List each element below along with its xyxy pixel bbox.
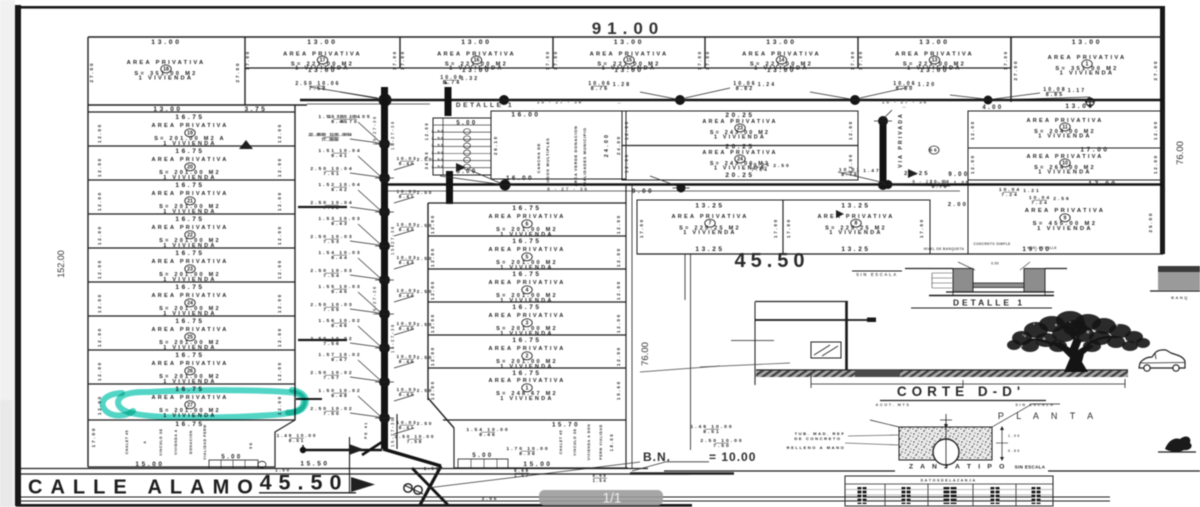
svg-text:12.00: 12.00 xyxy=(430,346,435,366)
svg-text:17.00: 17.00 xyxy=(919,218,924,238)
svg-text:2.50: 2.50 xyxy=(432,137,445,141)
svg-text:13.00: 13.00 xyxy=(308,67,337,74)
svg-text:AREA PRIVATIVA: AREA PRIVATIVA xyxy=(151,225,228,231)
svg-text:1 VIVIENDA: 1 VIVIENDA xyxy=(163,311,216,317)
svg-text:NIVEL DE BANQUETA: NIVEL DE BANQUETA xyxy=(924,247,965,251)
svg-text:16.75: 16.75 xyxy=(175,216,204,223)
svg-text:12.00: 12.00 xyxy=(97,361,102,381)
svg-text:8.41: 8.41 xyxy=(331,153,349,159)
svg-text:17.00: 17.00 xyxy=(858,50,863,70)
svg-text:AREA PRIVATIVA: AREA PRIVATIVA xyxy=(151,395,228,401)
svg-text:D A T O S D E L A Z A N: D A T O S D E L A Z A N J A xyxy=(921,479,976,483)
svg-text:8.36: 8.36 xyxy=(519,451,537,457)
svg-text:DONACION: DONACION xyxy=(189,430,193,454)
svg-text:AREA PRIVATIVA: AREA PRIVATIVA xyxy=(488,313,565,319)
svg-text:8.40: 8.40 xyxy=(399,161,416,166)
svg-text:8.85: 8.85 xyxy=(1046,92,1064,98)
svg-text:1 VIVIENDA: 1 VIVIENDA xyxy=(163,243,216,249)
svg-text:16.75: 16.75 xyxy=(512,370,541,377)
svg-text:9.00: 9.00 xyxy=(632,188,654,195)
svg-text:17.00: 17.00 xyxy=(639,218,644,238)
svg-text:16.00: 16.00 xyxy=(511,112,540,119)
svg-text:↔: ↔ xyxy=(902,104,908,109)
svg-text:SIN ESCALA: SIN ESCALA xyxy=(856,272,898,277)
svg-text:12.00: 12.00 xyxy=(616,247,621,267)
svg-text:27.00: 27.00 xyxy=(235,61,240,82)
svg-text:24.00: 24.00 xyxy=(604,133,610,158)
svg-text:8.82: 8.82 xyxy=(736,86,754,92)
svg-text:AREA PRIVATIVA: AREA PRIVATIVA xyxy=(151,259,228,265)
svg-text:15.00: 15.00 xyxy=(523,461,552,468)
svg-text:8.46: 8.46 xyxy=(479,432,497,438)
svg-text:0.60: 0.60 xyxy=(1008,449,1021,453)
svg-text:15.60: 15.60 xyxy=(616,380,621,400)
svg-text:AREA PRIVATIVA: AREA PRIVATIVA xyxy=(151,157,228,163)
svg-text:7.58: 7.58 xyxy=(407,439,424,444)
svg-text:AREA PRIVATIVA: AREA PRIVATIVA xyxy=(488,247,565,253)
svg-text:13.00: 13.00 xyxy=(920,67,949,74)
svg-text:15.50: 15.50 xyxy=(300,461,329,468)
svg-text:45.50: 45.50 xyxy=(734,250,809,272)
svg-text:8.76: 8.76 xyxy=(591,86,609,92)
svg-text:9 - 27 - 36: 9 - 27 - 36 xyxy=(547,187,589,192)
svg-text:1 VIVIENDA: 1 VIVIENDA xyxy=(1037,226,1093,232)
svg-text:12.00: 12.00 xyxy=(624,153,629,173)
svg-text:1.28: 1.28 xyxy=(613,82,631,88)
svg-text:15-27-36: 15-27-36 xyxy=(390,225,395,255)
svg-text:17.00: 17.00 xyxy=(1080,147,1109,154)
svg-text:2.00: 2.00 xyxy=(948,202,968,208)
svg-text:VINCULO SE: VINCULO SE xyxy=(159,428,163,455)
svg-text:CONCRETO SIMPLE: CONCRETO SIMPLE xyxy=(973,242,1011,246)
svg-text:1 VIVIENDA: 1 VIVIENDA xyxy=(163,379,216,385)
svg-text:12.00: 12.00 xyxy=(424,122,429,141)
svg-text:17.00: 17.00 xyxy=(697,50,702,70)
svg-text:12.00: 12.00 xyxy=(1153,154,1158,174)
svg-text:8.45: 8.45 xyxy=(399,326,416,331)
svg-text:12.00: 12.00 xyxy=(430,247,435,267)
svg-text:13.00: 13.00 xyxy=(919,39,949,46)
svg-text:AREA PRIVATIVA: AREA PRIVATIVA xyxy=(488,346,565,352)
svg-text:12.00: 12.00 xyxy=(277,123,282,143)
svg-text:12.00: 12.00 xyxy=(430,313,435,333)
svg-text:12.00: 12.00 xyxy=(277,259,282,279)
svg-text:13.00: 13.00 xyxy=(462,67,491,74)
svg-text:12.00: 12.00 xyxy=(277,293,282,313)
svg-text:8.46: 8.46 xyxy=(399,359,416,364)
svg-text:8.46: 8.46 xyxy=(331,323,349,329)
svg-text:17.00: 17.00 xyxy=(850,50,855,70)
svg-text:17.00: 17.00 xyxy=(786,218,791,238)
svg-text:27.00: 27.00 xyxy=(1013,59,1018,80)
svg-text:17.00: 17.00 xyxy=(400,50,405,70)
svg-text:2.50: 2.50 xyxy=(417,190,434,195)
svg-text:16.75: 16.75 xyxy=(175,284,204,291)
svg-text:CHALET 45: CHALET 45 xyxy=(125,430,129,454)
svg-text:8.43: 8.43 xyxy=(331,221,349,227)
svg-text:1 VIVIENDA: 1 VIVIENDA xyxy=(1038,133,1091,139)
svg-text:1.00: 1.00 xyxy=(1008,434,1021,438)
svg-text:12.00: 12.00 xyxy=(430,214,435,234)
svg-text:P L A N T A: P L A N T A xyxy=(998,411,1098,421)
svg-text:13.00: 13.00 xyxy=(767,67,796,74)
svg-text:12.00: 12.00 xyxy=(277,157,282,177)
svg-text:8.42: 8.42 xyxy=(331,187,349,193)
svg-text:17.00: 17.00 xyxy=(1003,50,1008,70)
svg-text:12.00: 12.00 xyxy=(277,361,282,381)
svg-text:12.00: 12.00 xyxy=(848,120,853,140)
svg-text:8.51: 8.51 xyxy=(703,429,721,435)
svg-text:16.75: 16.75 xyxy=(175,148,204,155)
svg-text:7.54: 7.54 xyxy=(751,167,769,173)
svg-text:15.70: 15.70 xyxy=(552,422,580,429)
svg-text:VINCULO SE: VINCULO SE xyxy=(573,428,577,455)
svg-text:RELLENO A MANO: RELLENO A MANO xyxy=(787,445,846,450)
svg-text:7.50: 7.50 xyxy=(713,443,731,449)
svg-text:8.44: 8.44 xyxy=(399,293,416,298)
svg-text:1 VIVIENDA: 1 VIVIENDA xyxy=(1038,169,1091,175)
svg-text:12.00: 12.00 xyxy=(97,157,102,177)
svg-text:5.00: 5.00 xyxy=(456,121,477,127)
svg-text:7.24: 7.24 xyxy=(1031,200,1049,206)
svg-text:16.75: 16.75 xyxy=(175,421,204,428)
svg-text:17.00: 17.00 xyxy=(545,50,550,70)
svg-text:1 VIVIENDA: 1 VIVIENDA xyxy=(500,396,553,402)
svg-text:15-27-36: 15-27-36 xyxy=(390,120,395,150)
svg-text:15-27-36: 15-27-36 xyxy=(390,417,395,447)
svg-text:2.50: 2.50 xyxy=(432,151,445,155)
svg-text:8.41: 8.41 xyxy=(399,425,416,430)
svg-text:CHALET 45: CHALET 45 xyxy=(559,430,563,454)
svg-text:8.41: 8.41 xyxy=(399,194,416,199)
svg-text:13.00: 13.00 xyxy=(614,39,644,46)
svg-text:1 VIVIENDA: 1 VIVIENDA xyxy=(829,230,882,236)
svg-text:76.00: 76.00 xyxy=(1175,141,1186,165)
svg-text:5.00: 5.00 xyxy=(472,453,493,459)
svg-text:12.00: 12.00 xyxy=(97,191,102,211)
svg-text:24.00: 24.00 xyxy=(616,135,621,155)
svg-text:2.50: 2.50 xyxy=(432,165,445,169)
svg-text:↔: ↔ xyxy=(617,100,623,105)
svg-text:12.00: 12.00 xyxy=(616,214,621,234)
svg-text:VIVIENDA A DON: VIVIENDA A DON xyxy=(587,424,591,461)
svg-text:13.00: 13.00 xyxy=(1072,39,1102,46)
svg-text:A: A xyxy=(143,440,147,443)
svg-text:15 - 27 - 36: 15 - 27 - 36 xyxy=(537,100,583,105)
svg-text:CORTE D-D': CORTE D-D' xyxy=(897,384,1025,399)
svg-text:12.00: 12.00 xyxy=(1153,120,1158,140)
svg-text:PERM VIALIDAD: PERM VIALIDAD xyxy=(599,424,603,459)
svg-text:16.75: 16.75 xyxy=(512,238,541,245)
svg-text:15-27-36: 15-27-36 xyxy=(390,323,395,353)
svg-text:26.10: 26.10 xyxy=(493,135,498,155)
svg-text:12.00: 12.00 xyxy=(277,327,282,347)
svg-text:AREA PRIVATIVA: AREA PRIVATIVA xyxy=(151,361,228,367)
svg-text:13.00: 13.00 xyxy=(151,39,181,46)
svg-text:1.20: 1.20 xyxy=(918,82,936,88)
svg-text:8.43: 8.43 xyxy=(399,260,416,265)
svg-text:AREA PRIVATIVA: AREA PRIVATIVA xyxy=(151,191,228,197)
svg-text:12.00: 12.00 xyxy=(97,259,102,279)
svg-text:5E: 5E xyxy=(249,441,253,449)
svg-text:20.25: 20.25 xyxy=(725,112,754,119)
svg-text:VIALIDAD PERM: VIALIDAD PERM xyxy=(203,424,207,459)
svg-text:8.42: 8.42 xyxy=(399,227,416,232)
svg-text:SIN ESCALA: SIN ESCALA xyxy=(1015,465,1046,470)
svg-text:17.00: 17.00 xyxy=(91,426,96,447)
svg-text:7.24: 7.24 xyxy=(1001,192,1019,198)
svg-text:13.25: 13.25 xyxy=(695,203,724,210)
svg-text:17.00: 17.00 xyxy=(553,50,558,70)
svg-text:8.44: 8.44 xyxy=(331,255,349,261)
svg-text:12.00: 12.00 xyxy=(97,123,102,143)
svg-text:2.56: 2.56 xyxy=(1053,196,1071,202)
svg-text:12.00: 12.00 xyxy=(430,280,435,300)
svg-text:DE CONCRETO: DE CONCRETO xyxy=(794,436,841,441)
svg-text:1.47: 1.47 xyxy=(863,168,881,174)
svg-text:8.45: 8.45 xyxy=(331,289,349,295)
svg-text:16.75: 16.75 xyxy=(512,205,541,212)
svg-text:DETALLE 1: DETALLE 1 xyxy=(456,102,514,109)
svg-text:BANQ: BANQ xyxy=(1171,295,1189,300)
svg-text:1.24: 1.24 xyxy=(758,82,776,88)
svg-text:SIN ESCALA: SIN ESCALA xyxy=(1015,402,1054,407)
svg-text:27.00: 27.00 xyxy=(89,61,94,82)
svg-text:1 VIVIENDA: 1 VIVIENDA xyxy=(163,345,216,351)
svg-text:AREA PRIVATIVA: AREA PRIVATIVA xyxy=(151,123,228,129)
svg-text:17.00: 17.00 xyxy=(705,50,710,70)
svg-text:8.48: 8.48 xyxy=(331,393,349,399)
svg-text:4.00: 4.00 xyxy=(982,105,1003,111)
svg-text:1 VIVIENDA: 1 VIVIENDA xyxy=(714,134,766,140)
svg-text:1/1: 1/1 xyxy=(603,491,622,506)
svg-text:7.54: 7.54 xyxy=(323,273,341,279)
svg-text:AREA PRIVATIVA: AREA PRIVATIVA xyxy=(488,280,565,286)
svg-text:0.50: 0.50 xyxy=(991,262,999,266)
svg-text:17.00: 17.00 xyxy=(245,50,250,70)
svg-text:AREA PRIVATIVA: AREA PRIVATIVA xyxy=(151,327,228,333)
svg-text:2.50: 2.50 xyxy=(432,158,445,162)
svg-text:1 VIVIENDA: 1 VIVIENDA xyxy=(163,175,216,181)
svg-text:15.00: 15.00 xyxy=(135,461,164,468)
svg-text:2.50: 2.50 xyxy=(773,163,791,169)
svg-text:AREA PRIVATIVA: AREA PRIVATIVA xyxy=(151,293,228,299)
svg-text:12.00: 12.00 xyxy=(616,346,621,366)
svg-text:7.50: 7.50 xyxy=(323,137,341,143)
svg-text:16.75: 16.75 xyxy=(175,114,204,121)
svg-text:17.00: 17.00 xyxy=(392,50,397,70)
svg-text:13.00: 13.00 xyxy=(461,39,491,46)
svg-text:DETALLE 1: DETALLE 1 xyxy=(953,298,1025,308)
svg-text:6.76: 6.76 xyxy=(932,184,949,189)
svg-text:1.54: 1.54 xyxy=(593,478,608,483)
svg-text:USOS MULTIPLES: USOS MULTIPLES xyxy=(545,137,550,182)
svg-text:VIALIDADES MUNICIPIO: VIALIDADES MUNICIPIO xyxy=(582,127,587,186)
svg-text:2.50: 2.50 xyxy=(417,157,434,162)
svg-text:16.75: 16.75 xyxy=(175,250,204,257)
svg-text:1 VIVIENDA: 1 VIVIENDA xyxy=(163,141,216,147)
svg-text:13.25: 13.25 xyxy=(841,246,870,253)
svg-text:16.75: 16.75 xyxy=(512,304,541,311)
svg-text:16.75: 16.75 xyxy=(512,337,541,344)
svg-text:16.75: 16.75 xyxy=(175,182,204,189)
svg-text:16.75: 16.75 xyxy=(175,318,204,325)
svg-text:9.00: 9.00 xyxy=(948,172,969,178)
svg-text:CANCHA DE: CANCHA DE xyxy=(536,143,541,173)
svg-text:7.55: 7.55 xyxy=(323,307,341,313)
svg-text:15-27-36: 15-27-36 xyxy=(372,285,377,315)
svg-text:AREA PRIVATIVA: AREA PRIVATIVA xyxy=(1025,208,1106,214)
svg-text:12.00: 12.00 xyxy=(97,225,102,245)
svg-text:25.00: 25.00 xyxy=(1148,211,1153,232)
svg-text:16.75: 16.75 xyxy=(512,271,541,278)
svg-text:1 VIVIENDA: 1 VIVIENDA xyxy=(683,230,736,236)
svg-text:16.75: 16.75 xyxy=(175,352,204,359)
svg-text:8.80: 8.80 xyxy=(896,86,914,92)
svg-text:1 VIVIENDA: 1 VIVIENDA xyxy=(163,209,216,215)
svg-text:1.17: 1.17 xyxy=(1068,88,1086,94)
svg-text:2.50: 2.50 xyxy=(432,144,445,148)
svg-text:8.51: 8.51 xyxy=(289,438,306,443)
svg-text:12.00: 12.00 xyxy=(277,191,282,211)
svg-text:AREA PRIVATIVA: AREA PRIVATIVA xyxy=(488,214,565,220)
svg-text:152.00: 152.00 xyxy=(56,250,66,278)
svg-text:13.25: 13.25 xyxy=(695,246,724,253)
svg-text:ACOT. MTS: ACOT. MTS xyxy=(875,402,910,407)
svg-text:12.00: 12.00 xyxy=(97,293,102,313)
svg-text:20.25: 20.25 xyxy=(725,172,754,179)
svg-text:2.50: 2.50 xyxy=(432,130,445,134)
svg-text:7.51: 7.51 xyxy=(323,171,341,177)
svg-text:VIA PRIVADA: VIA PRIVADA xyxy=(898,112,904,168)
svg-text:16.00: 16.00 xyxy=(506,175,534,182)
svg-text:7.53: 7.53 xyxy=(323,239,341,245)
svg-text:66: 66 xyxy=(930,148,939,153)
svg-text:12.00: 12.00 xyxy=(97,327,102,347)
svg-text:27.00: 27.00 xyxy=(1153,59,1158,80)
svg-text:1 VIVIENDA: 1 VIVIENDA xyxy=(163,277,216,283)
svg-text:CALLE ALAMO: CALLE ALAMO xyxy=(28,477,261,499)
svg-text:= 10.00: = 10.00 xyxy=(709,450,756,464)
svg-text:12.00: 12.00 xyxy=(430,380,435,400)
svg-text:15-27-36: 15-27-36 xyxy=(372,115,377,145)
svg-text:91.00: 91.00 xyxy=(592,19,665,38)
svg-text:7.57: 7.57 xyxy=(323,375,341,381)
svg-text:12.00: 12.00 xyxy=(616,280,621,300)
svg-text:8.40: 8.40 xyxy=(399,392,416,397)
svg-text:12.00: 12.00 xyxy=(624,120,629,140)
svg-text:12.00: 12.00 xyxy=(616,313,621,333)
svg-text:12.00: 12.00 xyxy=(277,225,282,245)
svg-text:▲: ▲ xyxy=(443,80,450,86)
svg-text:Z A N J A T I P O: Z A N J A T I P O xyxy=(909,464,1007,471)
svg-text:1.32: 1.32 xyxy=(461,76,479,82)
svg-text:VIVIENDA A: VIVIENDA A xyxy=(174,429,178,455)
svg-text:AREA PRIVATIVA: AREA PRIVATIVA xyxy=(488,378,565,384)
svg-text:PE 41: PE 41 xyxy=(364,421,368,439)
svg-text:13.25: 13.25 xyxy=(841,203,870,210)
svg-text:7.50: 7.50 xyxy=(323,411,341,417)
svg-text:12.00: 12.00 xyxy=(970,154,975,174)
svg-text:13.00: 13.00 xyxy=(307,39,337,46)
svg-text:76.00: 76.00 xyxy=(640,342,651,366)
svg-text:12.00: 12.00 xyxy=(970,120,975,140)
svg-text:1.25: 1.25 xyxy=(954,180,971,185)
svg-text:8.47: 8.47 xyxy=(331,357,349,363)
svg-text:AREA VERDE DONACION: AREA VERDE DONACION xyxy=(573,126,578,187)
svg-text:18.00: 18.00 xyxy=(609,433,614,452)
svg-text:8.40: 8.40 xyxy=(331,119,349,125)
svg-text:45.50: 45.50 xyxy=(260,471,349,495)
svg-text:2.50: 2.50 xyxy=(417,421,434,426)
svg-text:1 VIVIENDA: 1 VIVIENDA xyxy=(1060,70,1115,76)
svg-text:20.25: 20.25 xyxy=(904,171,930,177)
svg-text:1.21: 1.21 xyxy=(1023,188,1041,194)
svg-text:17.00: 17.00 xyxy=(773,218,778,238)
svg-text:13.00: 13.00 xyxy=(766,39,796,46)
svg-text:NIVEL DE CALLE: NIVEL DE CALLE xyxy=(1027,246,1057,250)
svg-text:13.00: 13.00 xyxy=(614,67,643,74)
svg-text:7.56: 7.56 xyxy=(323,341,341,347)
svg-text:1 VIVIENDA: 1 VIVIENDA xyxy=(139,75,194,81)
